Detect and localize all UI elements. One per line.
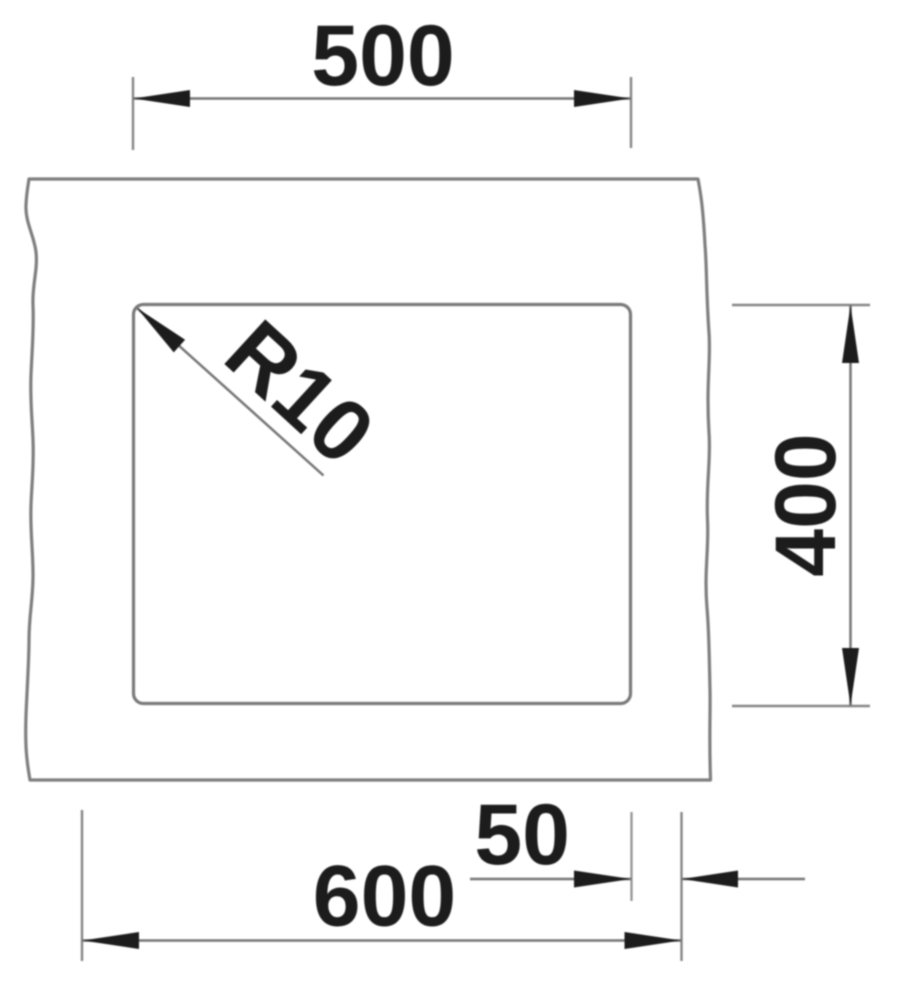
svg-text:400: 400 (758, 433, 854, 577)
svg-text:500: 500 (311, 8, 455, 104)
svg-text:600: 600 (313, 849, 457, 945)
svg-text:50: 50 (474, 787, 570, 883)
svg-text:R10: R10 (207, 301, 393, 483)
